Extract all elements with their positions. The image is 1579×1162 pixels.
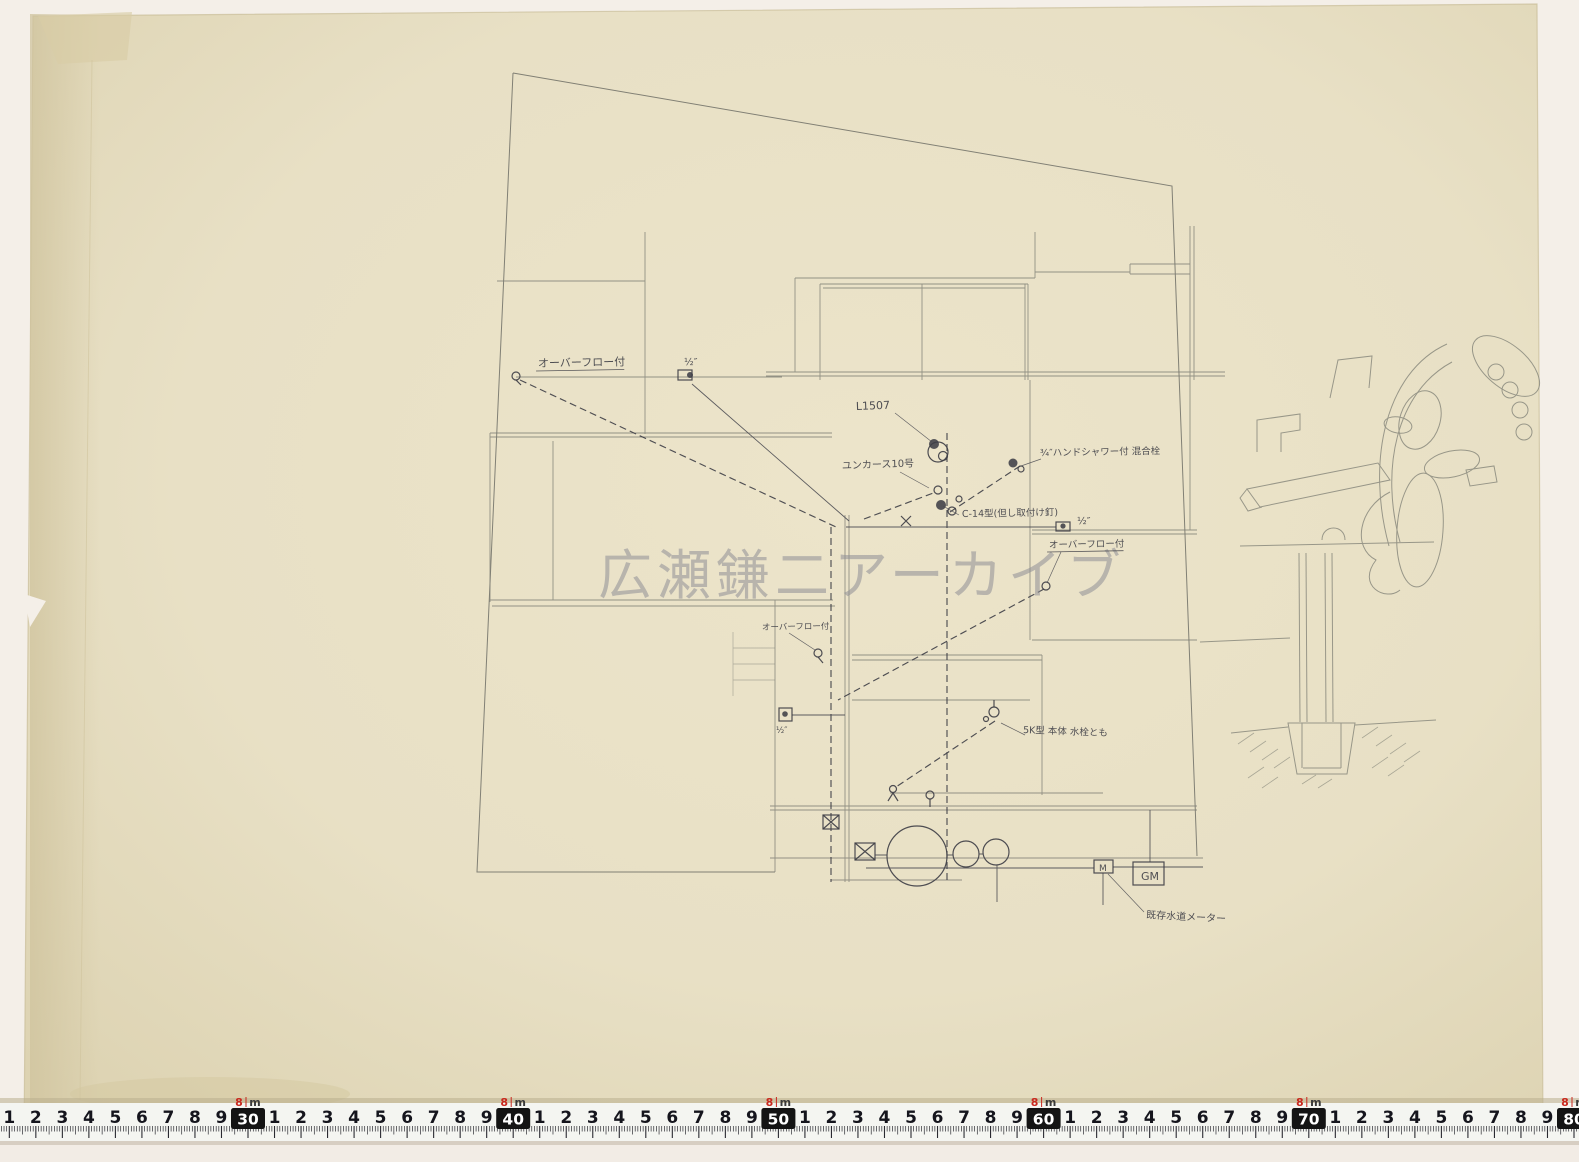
label-water-meter-m: M <box>1099 864 1107 874</box>
note-size-half-3: ½″ <box>776 726 787 736</box>
ruler-cm-digit: 2 <box>1091 1108 1103 1128</box>
archive-watermark: 広瀬鎌二アーカイブ <box>598 544 1126 607</box>
ruler-cm-digit: 7 <box>1489 1108 1501 1128</box>
note-overflow-3: オーバーフロー付 <box>762 621 830 633</box>
ruler-meter-digit: 8 <box>766 1096 774 1109</box>
note-size-half-2: ½″ <box>1077 515 1091 527</box>
ruler-meter-digit: 8 <box>1296 1096 1304 1109</box>
ruler-cm-digit: 2 <box>30 1108 42 1128</box>
ruler-cm-digit: 5 <box>640 1108 652 1128</box>
ruler-cm-digit: 5 <box>1435 1108 1447 1128</box>
ruler-cm-digit: 2 <box>295 1108 307 1128</box>
ruler-cm-digit: 1 <box>1064 1108 1076 1128</box>
ruler-cm-digit: 4 <box>1409 1108 1421 1128</box>
ruler-meter-digit: 8 <box>500 1096 508 1109</box>
ruler-cm-digit: 3 <box>1382 1108 1394 1128</box>
ruler-cm-digit: 7 <box>693 1108 705 1128</box>
measuring-tape-ruler: 123456789308m123456789408m123456789508m1… <box>0 1096 1579 1162</box>
ruler-cm-digit: 3 <box>322 1108 334 1128</box>
ruler-cm-digit: 1 <box>534 1108 546 1128</box>
ruler-cm-digit: 3 <box>56 1108 68 1128</box>
ruler-cm-digit: 6 <box>401 1108 413 1128</box>
ruler-cm-digit: 7 <box>958 1108 970 1128</box>
ruler-cm-digit: 1 <box>269 1108 281 1128</box>
ruler-cm-digit: 4 <box>613 1108 625 1128</box>
ruler-cm-digit: 1 <box>3 1108 15 1128</box>
scanned-drawing-page: 広瀬鎌二アーカイブ オーバーフロー付½″L1507ユンカース10号¾″ハンドシャ… <box>0 0 1579 1162</box>
note-hand-shower-mixer: ¾″ハンドシャワー付 混合栓 <box>1040 445 1161 459</box>
ruler-cm-digit: 7 <box>428 1108 440 1128</box>
note-c14: C-14型(但し取付け釘) <box>962 506 1058 520</box>
ruler-meter-unit: m <box>249 1096 260 1109</box>
scanned-drawing-canvas: 広瀬鎌二アーカイブ オーバーフロー付½″L1507ユンカース10号¾″ハンドシャ… <box>0 0 1579 1162</box>
ruler-cm-digit: 5 <box>109 1108 121 1128</box>
ruler-cm-digit: 5 <box>1170 1108 1182 1128</box>
ruler-cm-digit: 2 <box>1356 1108 1368 1128</box>
ruler-cm-digit: 6 <box>1197 1108 1209 1128</box>
paper-left-edge-shade <box>30 14 100 1134</box>
ruler-cm-digit: 1 <box>1329 1108 1341 1128</box>
ruler-decimeter-label: 30 <box>237 1111 259 1129</box>
ruler-cm-digit: 3 <box>587 1108 599 1128</box>
ruler-cm-digit: 3 <box>852 1108 864 1128</box>
ruler-cm-digit: 7 <box>1223 1108 1235 1128</box>
ruler-bottom-shadow <box>0 1141 1579 1145</box>
ruler-cm-digit: 9 <box>1542 1108 1554 1128</box>
note-overflow-1: オーバーフロー付 <box>538 355 625 370</box>
below-ruler-background <box>0 1145 1579 1162</box>
ruler-meter-unit: m <box>1575 1096 1579 1109</box>
ruler-decimeter-label: 50 <box>768 1111 790 1129</box>
ruler-decimeter-label: 80 <box>1563 1111 1579 1129</box>
ruler-meter-unit: m <box>514 1096 525 1109</box>
ruler-decimeter-label: 40 <box>502 1111 524 1129</box>
ruler-cm-digit: 1 <box>799 1108 811 1128</box>
ruler-decimeter-label: 60 <box>1033 1111 1055 1129</box>
ruler-cm-digit: 6 <box>666 1108 678 1128</box>
ruler-cm-digit: 9 <box>481 1108 493 1128</box>
ruler-cm-digit: 6 <box>136 1108 148 1128</box>
ruler-cm-digit: 8 <box>454 1108 466 1128</box>
ruler-cm-digit: 4 <box>83 1108 95 1128</box>
ruler-cm-digit: 8 <box>985 1108 997 1128</box>
ruler-cm-digit: 5 <box>375 1108 387 1128</box>
note-size-half-1: ½″ <box>684 356 698 368</box>
ruler-cm-digit: 6 <box>932 1108 944 1128</box>
ruler-cm-digit: 4 <box>348 1108 360 1128</box>
ruler-cm-digit: 8 <box>719 1108 731 1128</box>
ruler-cm-digit: 8 <box>189 1108 201 1128</box>
ruler-cm-digit: 9 <box>216 1108 228 1128</box>
ruler-decimeter-label: 70 <box>1298 1111 1320 1129</box>
ruler-cm-digit: 8 <box>1515 1108 1527 1128</box>
ruler-meter-digit: 8 <box>1561 1096 1569 1109</box>
ruler-meter-unit: m <box>1045 1096 1056 1109</box>
ruler-meter-digit: 8 <box>1031 1096 1039 1109</box>
note-overflow-2: オーバーフロー付 <box>1049 539 1125 551</box>
ruler-cm-digit: 4 <box>1144 1108 1156 1128</box>
ruler-cm-digit: 6 <box>1462 1108 1474 1128</box>
ruler-cm-digit: 8 <box>1250 1108 1262 1128</box>
ruler-cm-digit: 9 <box>1011 1108 1023 1128</box>
label-gas-meter-gm: GM <box>1141 870 1159 883</box>
ruler-meter-unit: m <box>1310 1096 1321 1109</box>
note-junkers-10: ユンカース10号 <box>842 457 915 472</box>
ruler-cm-digit: 2 <box>560 1108 572 1128</box>
ruler-cm-digit: 5 <box>905 1108 917 1128</box>
ruler-meter-digit: 8 <box>235 1096 243 1109</box>
note-l1507: L1507 <box>856 399 891 413</box>
ruler-meter-unit: m <box>780 1096 791 1109</box>
ruler-cm-digit: 4 <box>879 1108 891 1128</box>
ruler-cm-digit: 2 <box>826 1108 838 1128</box>
ruler-cm-digit: 7 <box>163 1108 175 1128</box>
ruler-cm-digit: 3 <box>1117 1108 1129 1128</box>
ruler-cm-digit: 9 <box>746 1108 758 1128</box>
ruler-cm-digit: 9 <box>1276 1108 1288 1128</box>
